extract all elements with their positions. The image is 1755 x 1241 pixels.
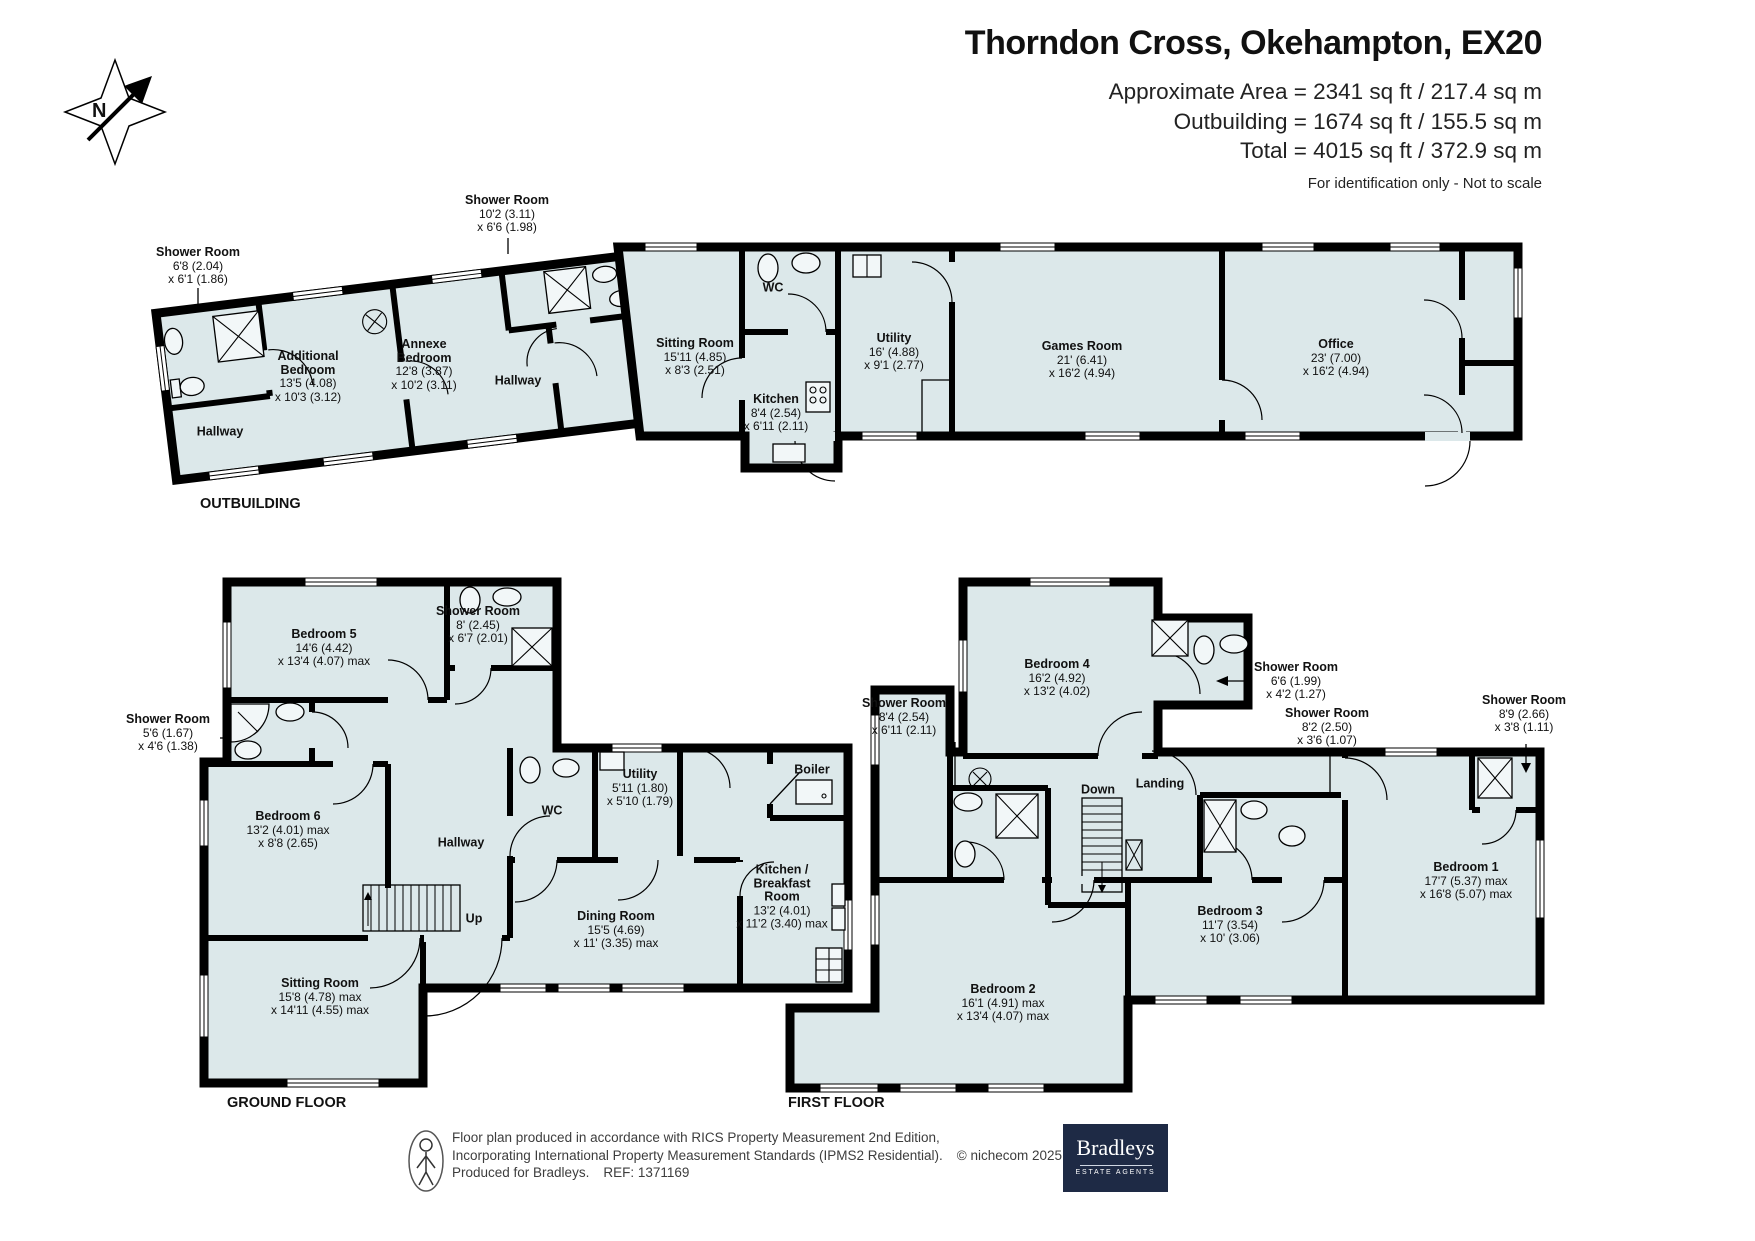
header: Thorndon Cross, Okehampton, EX20 Approxi…: [965, 24, 1542, 192]
sink-icon: [773, 444, 805, 462]
person-scale-icon: [409, 1131, 443, 1191]
room-label-ob-shower-top: Shower Room10'2 (3.11)x 6'6 (1.98): [465, 194, 549, 235]
approximate-area: Approximate Area = 2341 sq ft / 217.4 sq…: [965, 77, 1542, 107]
toilet-icon: [758, 254, 778, 282]
room-label-ob-sitting-room: Sitting Room15'11 (4.85)x 8'3 (2.51): [656, 337, 734, 378]
brand-name: Bradleys: [1063, 1135, 1168, 1161]
room-label-office: Office23' (7.00)x 16'2 (4.94): [1303, 338, 1369, 379]
room-label-ob-hallway-mid: Hallway: [495, 374, 542, 388]
room-label-ob-utility: Utility16' (4.88)x 9'1 (2.77): [864, 332, 924, 373]
sink-icon: [792, 253, 820, 273]
toilet-icon: [235, 741, 261, 759]
room-label-gf-shower-top: Shower Room8' (2.45)x 6'7 (2.01): [436, 605, 520, 646]
toilet-icon: [955, 841, 975, 867]
shower-tray-icon: [1152, 620, 1188, 656]
room-label-bedroom6: Bedroom 613'2 (4.01) maxx 8'8 (2.65): [247, 810, 330, 851]
sink-icon: [276, 703, 304, 721]
caption-outbuilding: OUTBUILDING: [200, 496, 301, 512]
room-label-gf-shower-left: Shower Room5'6 (1.67)x 4'6 (1.38): [126, 713, 210, 754]
nichecom-credit: © nichecom 2025.: [957, 1148, 1066, 1163]
shower-tray-icon: [213, 311, 264, 362]
stove-icon: [806, 382, 830, 412]
toilet-icon: [1194, 636, 1214, 664]
shower-tray-icon: [1204, 800, 1236, 852]
room-label-bedroom2: Bedroom 216'1 (4.91) maxx 13'4 (4.07) ma…: [957, 983, 1049, 1024]
footer-line3: Produced for Bradleys.REF: 1371169: [452, 1164, 1066, 1182]
room-label-gf-sitting-room: Sitting Room15'8 (4.78) maxx 14'11 (4.55…: [271, 977, 369, 1018]
stairs-up-label: Up: [466, 912, 483, 926]
stairs-down-label: Down: [1081, 783, 1115, 797]
room-label-additional-bedroom: AdditionalBedroom 13'5 (4.08)x 10'3 (3.1…: [275, 350, 341, 404]
floorplan-page: { "header": { "title": "Thorndon Cross, …: [0, 0, 1755, 1241]
appliance-icon: [816, 948, 842, 982]
room-label-ob-hallway-left: Hallway: [197, 425, 244, 439]
identification-disclaimer: For identification only - Not to scale: [965, 175, 1542, 192]
room-label-bedroom5: Bedroom 514'6 (4.42)x 13'4 (4.07) max: [278, 628, 370, 669]
sink-icon: [1220, 635, 1248, 653]
room-label-bedroom1: Bedroom 117'7 (5.37) maxx 16'8 (5.07) ma…: [1420, 861, 1512, 902]
room-label-gf-wc: WC: [542, 804, 563, 818]
shower-tray-icon: [544, 267, 591, 314]
caption-first-floor: FIRST FLOOR: [788, 1095, 885, 1111]
bradleys-logo: Bradleys ESTATE AGENTS: [1063, 1124, 1168, 1192]
sink-icon: [553, 759, 579, 777]
room-label-dining-room: Dining Room15'5 (4.69)x 11' (3.35) max: [574, 910, 659, 951]
toilet-icon: [520, 757, 540, 783]
room-label-boiler: Boiler: [794, 763, 829, 777]
boiler-icon: [796, 780, 832, 804]
compass-north-label: N: [92, 100, 106, 123]
brand-divider: [1080, 1165, 1152, 1166]
room-label-landing: Landing: [1136, 777, 1185, 791]
room-label-ob-shower-left: Shower Room6'8 (2.04)x 6'1 (1.86): [156, 246, 240, 287]
reference-number: REF: 1371169: [603, 1165, 689, 1180]
sink-icon: [1241, 801, 1267, 819]
room-label-games-room: Games Room21' (6.41)x 16'2 (4.94): [1042, 340, 1123, 381]
room-label-ff-shower-82: Shower Room8'2 (2.50)x 3'6 (1.07): [1285, 707, 1369, 748]
room-label-kitchen-breakfast: Kitchen /Breakfast Room 13'2 (4.01)x 11'…: [736, 863, 827, 931]
shower-tray-icon: [996, 794, 1038, 838]
footer-disclaimer: Floor plan produced in accordance with R…: [452, 1129, 1066, 1182]
room-label-gf-utility: Utility5'11 (1.80)x 5'10 (1.79): [607, 768, 673, 809]
room-label-bedroom3: Bedroom 311'7 (3.54)x 10' (3.06): [1197, 905, 1262, 946]
first-floor-plan: [790, 578, 1544, 1092]
caption-ground-floor: GROUND FLOOR: [227, 1095, 346, 1111]
room-label-gf-hallway: Hallway: [438, 836, 485, 850]
total-area: Total = 4015 sq ft / 372.9 sq m: [965, 136, 1542, 166]
shower-tray-icon: [1478, 758, 1512, 798]
room-label-ff-shower-66: Shower Room6'6 (1.99)x 4'2 (1.27): [1254, 661, 1338, 702]
footer-line2: Incorporating International Property Mea…: [452, 1147, 1066, 1165]
sink-icon: [853, 255, 881, 277]
footer-line1: Floor plan produced in accordance with R…: [452, 1129, 1066, 1147]
brand-tagline: ESTATE AGENTS: [1063, 1169, 1168, 1176]
sink-icon: [954, 793, 982, 811]
compass-icon: [65, 60, 165, 164]
room-label-ff-shower-84: Shower Room8'4 (2.54)x 6'11 (2.11): [862, 697, 946, 738]
room-label-ff-shower-89: Shower Room8'9 (2.66)x 3'8 (1.11): [1482, 694, 1566, 735]
room-label-bedroom4: Bedroom 416'2 (4.92)x 13'2 (4.02): [1024, 658, 1090, 699]
room-label-annexe-bedroom: AnnexeBedroom 12'8 (3.87)x 10'2 (3.11): [391, 338, 456, 392]
room-label-ob-kitchen: Kitchen8'4 (2.54)x 6'11 (2.11): [744, 393, 809, 434]
page-title: Thorndon Cross, Okehampton, EX20: [965, 24, 1542, 63]
outbuilding-area: Outbuilding = 1674 sq ft / 155.5 sq m: [965, 107, 1542, 137]
area-summary: Approximate Area = 2341 sq ft / 217.4 sq…: [965, 77, 1542, 166]
room-label-ob-wc: WC: [763, 281, 784, 295]
toilet-icon: [1279, 826, 1305, 846]
